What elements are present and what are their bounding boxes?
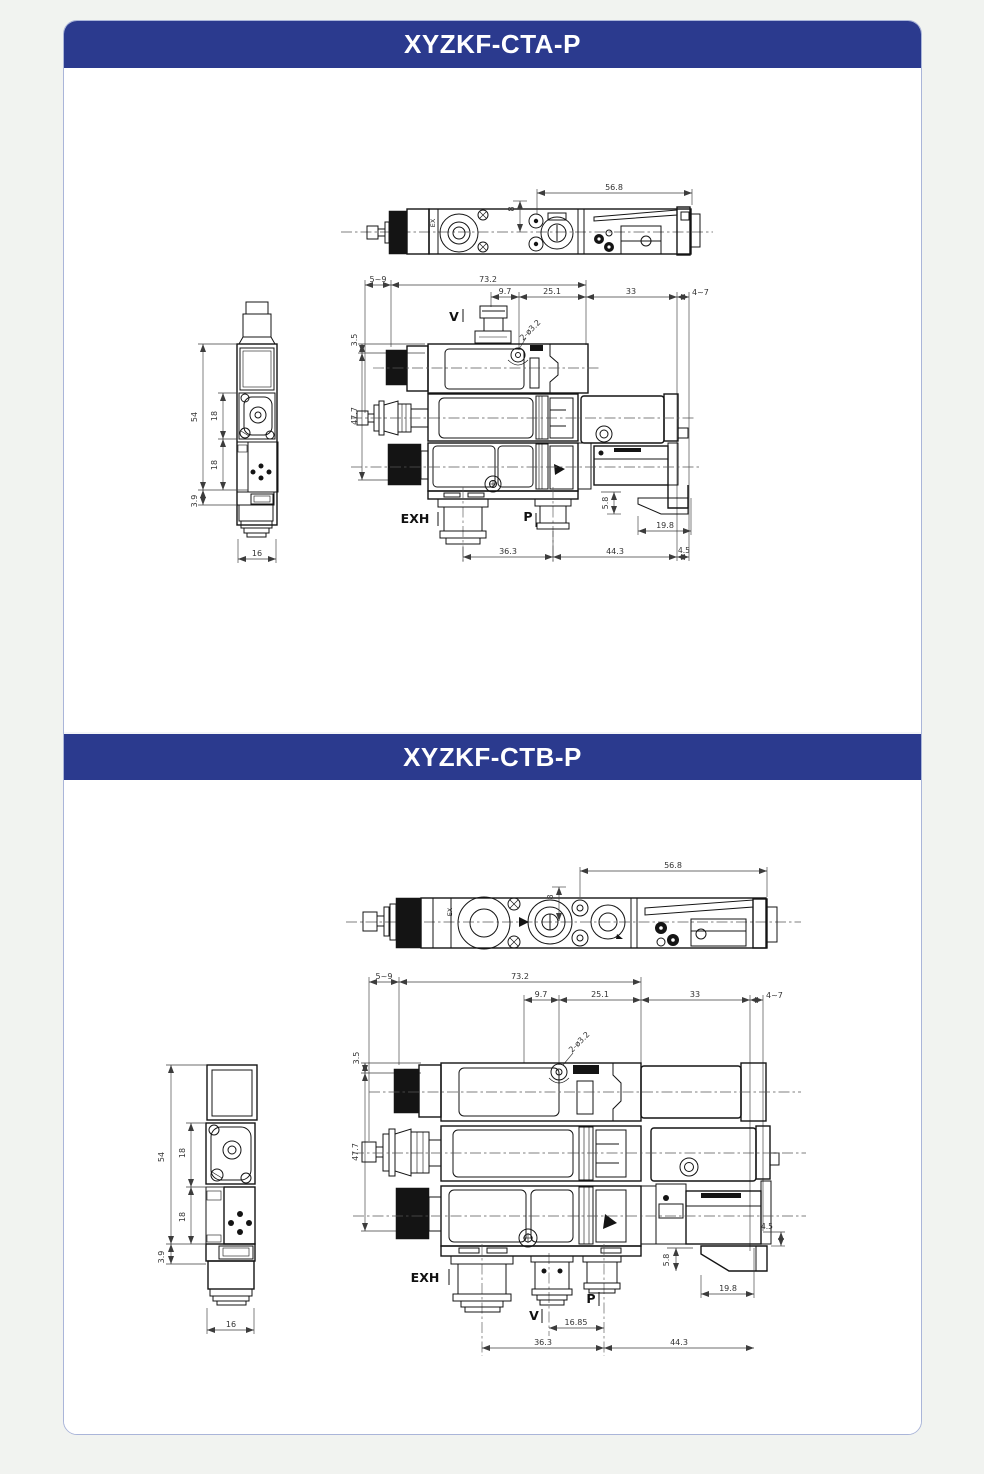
port-v-label: V <box>529 1308 539 1323</box>
dim-label: 33 <box>690 990 700 999</box>
dim-label: 44.3 <box>670 1338 688 1347</box>
ctb-top-view: EX 56.8 <box>346 861 801 949</box>
datasheet-card: XYZKF-CTA-P EX <box>63 20 922 1435</box>
ctb-side-view: 54 18 18 3.9 16 <box>157 1065 257 1334</box>
dim-label: 19.8 <box>719 1284 737 1293</box>
ctb-drawing: EX 56.8 <box>64 780 921 1434</box>
dim-label: 9.7 <box>499 287 512 296</box>
panel-a-drawing-area: EX 56.8 8 <box>64 68 921 732</box>
dim-label: 4~7 <box>692 288 709 297</box>
port-v-label: V <box>449 309 459 324</box>
dim-label: 47.7 <box>350 407 359 425</box>
dim-label: 5.8 <box>662 1254 671 1267</box>
cta-drawing: EX 56.8 8 <box>64 68 921 732</box>
dim-label: 54 <box>190 412 199 422</box>
dim-label: 16 <box>226 1320 236 1329</box>
dim-label: 47.7 <box>351 1143 360 1161</box>
cta-top-view: EX 56.8 8 <box>341 183 713 255</box>
port-exh-label: EXH <box>401 511 430 526</box>
marking-ex: EX <box>446 907 454 916</box>
dim-label: 8 <box>507 206 516 211</box>
port-p-label: P <box>523 509 532 524</box>
dim-label: 4.5 <box>761 1222 773 1231</box>
dim-label: 73.2 <box>479 275 497 284</box>
dim-label: 18 <box>210 460 219 470</box>
dim-label: 4~7 <box>766 991 783 1000</box>
dim-label: 19.8 <box>656 521 674 530</box>
dim-label: 5.8 <box>601 497 610 510</box>
dim-label: 18 <box>178 1212 187 1222</box>
dim-label: 56.8 <box>664 861 682 870</box>
port-exh-label: EXH <box>411 1270 440 1285</box>
dim-label: 56.8 <box>605 183 623 192</box>
ctb-front-view: 5~9 73.2 9.7 25.1 33 4~7 3.5 47.7 2-ø3.2 <box>351 972 806 1356</box>
panel-b-drawing-area: EX 56.8 <box>64 780 921 1434</box>
dim-label: 8 <box>546 894 555 899</box>
holes-callout: 2-ø3.2 <box>518 318 542 342</box>
dim-label: 9.7 <box>535 990 548 999</box>
dim-label: 5~9 <box>370 275 387 284</box>
dim-label: 36.3 <box>499 547 517 556</box>
dim-label: 25.1 <box>591 990 609 999</box>
panel-b-title: XYZKF-CTB-P <box>403 742 582 772</box>
dim-label: 3.9 <box>190 495 199 508</box>
dim-label: 73.2 <box>511 972 529 981</box>
dim-label: 25.1 <box>543 287 561 296</box>
dim-label: 16.85 <box>565 1318 588 1327</box>
dim-label: 3.5 <box>352 1052 361 1065</box>
dim-label: 54 <box>157 1152 166 1162</box>
dim-label: 3.5 <box>350 334 359 347</box>
dim-label: 33 <box>626 287 636 296</box>
dim-label: 44.3 <box>606 547 624 556</box>
dim-label: 4.5 <box>678 546 690 555</box>
marking-ex: EX <box>429 218 437 227</box>
dim-label: 18 <box>210 411 219 421</box>
dim-label: 3.9 <box>157 1251 166 1264</box>
dim-label: 5~9 <box>376 972 393 981</box>
panel-a-title-bar: XYZKF-CTA-P <box>64 21 921 68</box>
holes-callout: 2-ø3.2 <box>567 1030 591 1054</box>
dim-label: 36.3 <box>534 1338 552 1347</box>
panel-b-title-bar: XYZKF-CTB-P <box>64 732 921 780</box>
panel-a-title: XYZKF-CTA-P <box>404 29 581 59</box>
dim-label: 18 <box>178 1148 187 1158</box>
cta-front-view: 5~9 73.2 9.7 25.1 33 4~7 3.5 47.7 V <box>350 275 709 563</box>
dim-label: 16 <box>252 549 262 558</box>
cta-side-view: 54 18 18 3.9 16 <box>190 302 278 563</box>
port-p-label: P <box>586 1291 595 1306</box>
